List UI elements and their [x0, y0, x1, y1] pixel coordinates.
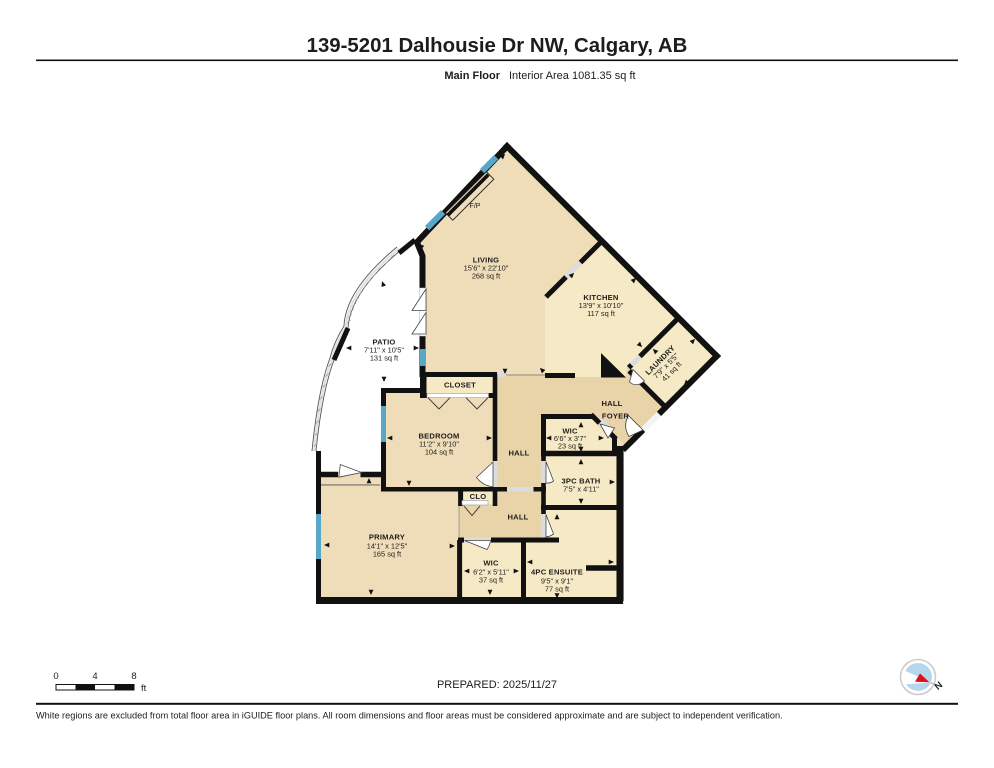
svg-text:HALL: HALL [601, 399, 622, 408]
svg-text:Main Floor: Main Floor [444, 70, 500, 82]
svg-text:FOYER: FOYER [602, 412, 629, 421]
svg-text:HALL: HALL [507, 513, 528, 522]
svg-text:165 sq ft: 165 sq ft [373, 550, 401, 559]
svg-text:CLOSET: CLOSET [444, 381, 476, 390]
svg-text:139-5201 Dalhousie Dr NW, Calg: 139-5201 Dalhousie Dr NW, Calgary, AB [307, 35, 688, 57]
svg-text:23 sq ft: 23 sq ft [558, 442, 582, 451]
svg-text:131 sq ft: 131 sq ft [370, 354, 398, 363]
svg-text:104 sq ft: 104 sq ft [425, 448, 453, 457]
svg-text:8: 8 [131, 671, 136, 682]
svg-text:PRIMARY: PRIMARY [369, 533, 405, 542]
svg-text:White regions are excluded fro: White regions are excluded from total fl… [36, 711, 783, 721]
svg-text:117 sq ft: 117 sq ft [587, 309, 615, 318]
svg-text:HALL: HALL [508, 449, 529, 458]
svg-text:PREPARED: 2025/11/27: PREPARED: 2025/11/27 [437, 679, 557, 691]
svg-text:F/P: F/P [470, 203, 481, 210]
svg-text:268 sq ft: 268 sq ft [472, 272, 500, 281]
svg-text:WIC: WIC [483, 559, 499, 568]
svg-text:4: 4 [92, 671, 97, 682]
svg-text:Interior Area 1081.35 sq ft: Interior Area 1081.35 sq ft [509, 70, 636, 82]
svg-text:77 sq ft: 77 sq ft [545, 585, 569, 594]
svg-text:37 sq ft: 37 sq ft [479, 576, 503, 585]
svg-text:0: 0 [53, 671, 58, 682]
svg-text:ft: ft [141, 683, 147, 694]
svg-text:4PC ENSUITE: 4PC ENSUITE [531, 568, 583, 577]
svg-text:7'5" x 4'11": 7'5" x 4'11" [563, 485, 599, 494]
svg-text:CLO: CLO [470, 492, 487, 501]
